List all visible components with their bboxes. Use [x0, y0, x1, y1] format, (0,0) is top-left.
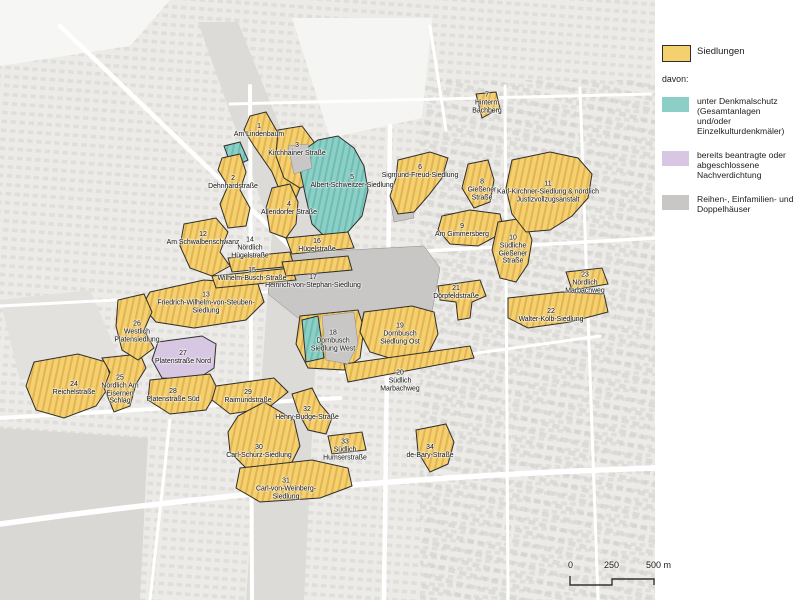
legend-label: bereits beantragte oder abgeschlossene N… — [697, 150, 796, 180]
nachverdichtung-color-swatch — [662, 151, 689, 166]
settlement-area-27 — [152, 336, 216, 380]
legend-row-reihenhaeuser: Reihen-, Einfamilien- und Doppelhäuser — [662, 194, 796, 214]
siedlungen-color-swatch — [662, 45, 691, 62]
scale-tick-500: 500 m — [646, 560, 671, 570]
scale-bar: 0 250 500 m — [560, 558, 672, 592]
legend-row-siedlungen: Siedlungen — [662, 44, 796, 60]
legend-label: Reihen-, Einfamilien- und Doppelhäuser — [697, 194, 796, 214]
side-panel: Siedlungen davon: unter Denkmalschutz (G… — [655, 0, 800, 600]
settlement-area-33 — [328, 432, 366, 454]
road — [250, 86, 252, 600]
denkmalschutz-color-swatch — [662, 97, 689, 112]
legend-label: Siedlungen — [697, 44, 796, 60]
map-sheet: 1Am Lindenbaum2Dehnhardstraße3Kirchhaine… — [0, 0, 800, 600]
davon-label: davon: — [662, 74, 796, 84]
legend-row-nachverdichtung: bereits beantragte oder abgeschlossene N… — [662, 150, 796, 180]
city-map — [0, 0, 655, 600]
reihenhaeuser-color-swatch — [662, 195, 689, 210]
legend-label: unter Denkmalschutz (Gesamtanlagen und/o… — [697, 96, 796, 136]
map-canvas: 1Am Lindenbaum2Dehnhardstraße3Kirchhaine… — [0, 0, 655, 600]
legend-row-denkmalschutz: unter Denkmalschutz (Gesamtanlagen und/o… — [662, 96, 796, 136]
scale-tick-250: 250 — [604, 560, 619, 570]
scale-tick-0: 0 — [568, 560, 573, 570]
legend: Siedlungen davon: unter Denkmalschutz (G… — [662, 44, 796, 228]
